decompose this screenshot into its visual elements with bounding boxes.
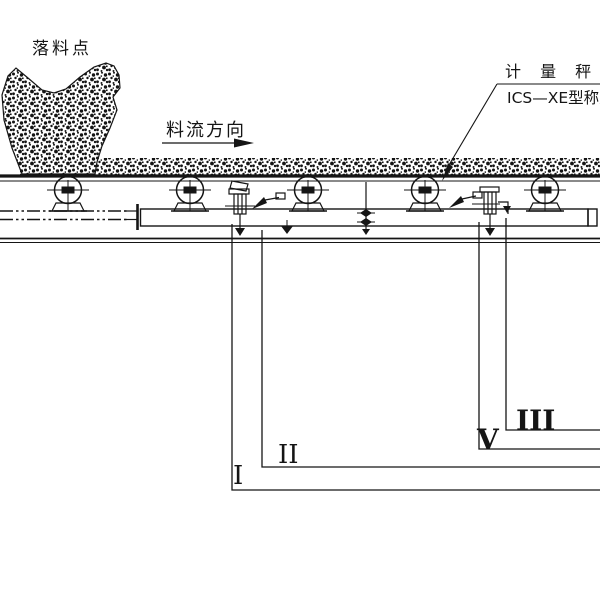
section-label-V: V (476, 423, 500, 456)
section-label-I: I (233, 461, 243, 491)
belt-weigher-diagram: 落料点 料流方向 计 量 秤 ICS—XE型称重 I II III V (0, 0, 600, 600)
section-label-III: III (516, 404, 555, 437)
schematic-canvas: 落料点 料流方向 计 量 秤 ICS—XE型称重 I II III V (0, 0, 600, 600)
material-layer (20, 158, 600, 175)
drop-point-label: 落料点 (32, 39, 92, 59)
flow-direction-label: 料流方向 (166, 120, 246, 141)
meter-title-label: 计 量 秤 (505, 62, 598, 81)
meter-model-label: ICS—XE型称重 (507, 89, 600, 107)
section-label-II: II (278, 440, 299, 470)
